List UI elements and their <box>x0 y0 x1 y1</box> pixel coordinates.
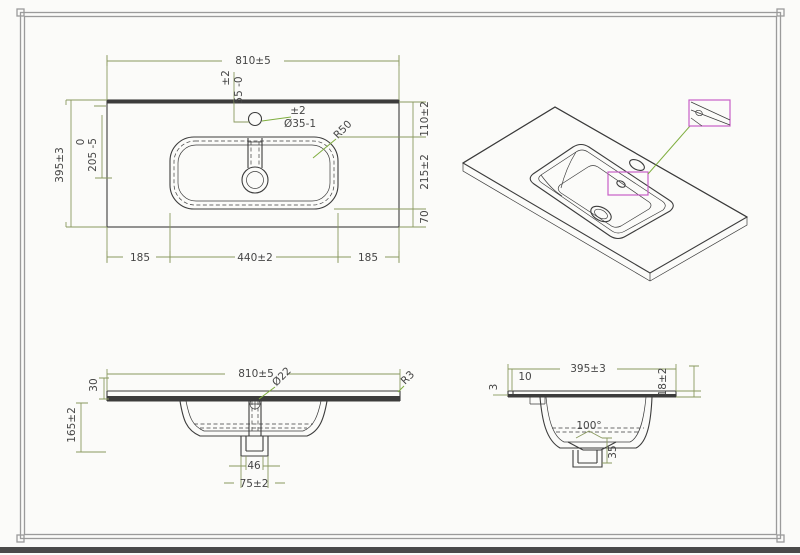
iso-slab-top <box>463 107 747 273</box>
dim-label: 810±5 <box>238 368 274 380</box>
dim-label: 10 <box>518 371 531 383</box>
side-view: 395±3 10 3 18±2 100° 35 <box>488 363 701 467</box>
plan-faucet-hole <box>249 113 262 126</box>
dim-label: 18±2 <box>657 368 669 397</box>
dim-label: 55 -0 <box>233 76 245 103</box>
iso-slab-dark-edges <box>463 107 747 217</box>
dim-label: 395±3 <box>54 147 66 183</box>
side-dim-lip: 3 <box>488 384 508 395</box>
front-dim-height: 165±2 <box>66 403 106 452</box>
side-slab-dark-band <box>508 394 676 397</box>
side-dim-ledge: 10 <box>508 369 532 391</box>
iso-basin-rim-outer <box>530 145 673 239</box>
front-slab-dark-band <box>107 396 400 401</box>
iso-basin-rim-inner <box>539 150 666 233</box>
footer-bar <box>0 547 800 553</box>
plan-basin-hidden <box>174 141 334 205</box>
side-dim-edge-thickness: 18±2 <box>657 366 701 397</box>
side-drain-outlet <box>573 450 602 467</box>
dim-label: 110±2 <box>419 101 431 137</box>
side-dim-bowl-angle: 100° <box>576 420 601 432</box>
dim-label: 46 <box>247 460 261 472</box>
dim-label: R3 <box>399 369 417 387</box>
dim-label: ±2 <box>220 70 232 85</box>
dim-label: 3 <box>488 384 500 391</box>
dim-label: Ø35-1 <box>284 118 316 130</box>
side-dim-depth: 395±3 <box>508 363 676 391</box>
plan-dim-width: 810±5 <box>107 55 399 100</box>
dim-label: 205 -5 <box>87 138 99 172</box>
dim-label: 0 <box>75 139 87 146</box>
plan-countertop <box>107 100 399 227</box>
dim-label: 35 <box>607 445 619 458</box>
dim-label: 70 <box>419 210 431 223</box>
front-dim-edge-radius: R3 <box>398 369 417 392</box>
plan-back-edge <box>107 100 399 104</box>
front-dim-apron: 30 <box>88 378 109 399</box>
drawing-canvas: 810±5 ±2 55 -0 ±2 Ø35-1 R50 395±3 0 205 … <box>0 0 800 555</box>
front-drain-outlet <box>241 436 268 456</box>
front-dim-drain-inner: 46 <box>229 456 280 472</box>
dim-label: 810±5 <box>235 55 271 67</box>
drawing-sheet: 810±5 ±2 55 -0 ±2 Ø35-1 R50 395±3 0 205 … <box>0 0 800 555</box>
side-mount-detail <box>530 397 545 404</box>
plan-drain-inner <box>247 172 264 189</box>
detail-leader-line <box>648 126 690 174</box>
dim-label: 440±2 <box>237 252 273 264</box>
detail-highlight-box <box>608 172 648 195</box>
dim-label: 165±2 <box>66 407 78 443</box>
detail-zoom-box <box>689 100 730 126</box>
iso-view <box>463 100 747 281</box>
sheet-frame <box>0 9 800 553</box>
dim-label: 215±2 <box>419 154 431 190</box>
plan-dim-faucet-offset: ±2 55 -0 <box>220 70 249 122</box>
plan-view: 810±5 ±2 55 -0 ±2 Ø35-1 R50 395±3 0 205 … <box>54 55 431 264</box>
iso-faucet-hole <box>628 157 646 172</box>
plan-drain-outer <box>242 167 268 193</box>
dim-label: 185 <box>358 252 378 264</box>
plan-dim-radius: R50 <box>313 118 354 158</box>
plan-overflow-slot <box>248 138 262 168</box>
plan-dim-hole: ±2 Ø35-1 <box>262 105 316 130</box>
iso-overflow-hole <box>616 179 627 188</box>
front-basin-hidden <box>194 424 313 428</box>
front-basin-inner <box>186 401 321 431</box>
plan-dim-right-stack: 110±2 215±2 70 <box>334 101 431 227</box>
dim-label: R50 <box>331 118 354 141</box>
dim-label: 75±2 <box>240 478 269 490</box>
plan-dim-bottom-stack: 185 440±2 185 <box>107 213 399 264</box>
front-dim-width: 810±5 <box>107 368 400 391</box>
plan-dim-depth: 395±3 <box>54 100 107 227</box>
dim-label: 395±3 <box>570 363 606 375</box>
iso-basin-bottom <box>558 166 651 228</box>
dim-label: 185 <box>130 252 150 264</box>
plan-basin-outer <box>170 137 338 209</box>
iso-drain-hole <box>588 203 614 225</box>
front-view: 810±5 Ø22 R3 30 165±2 46 75±2 <box>66 365 417 490</box>
dim-label: ±2 <box>290 105 305 117</box>
dim-label: 30 <box>88 378 100 391</box>
